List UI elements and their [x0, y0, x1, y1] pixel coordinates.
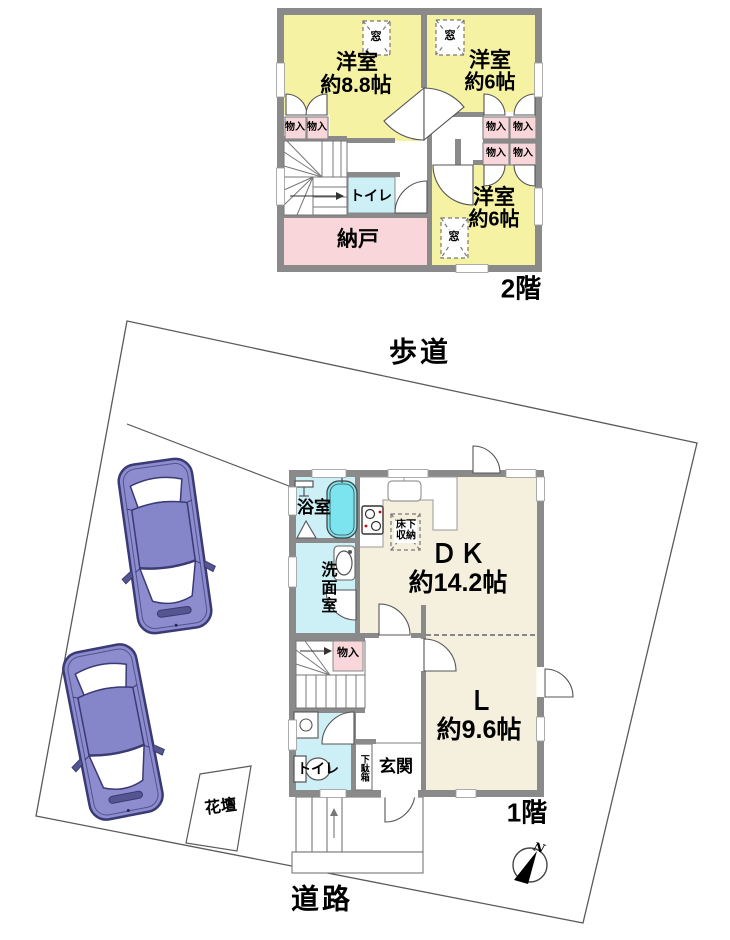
living-name: Ｌ [468, 687, 494, 714]
closet-label: 物入 [513, 123, 533, 134]
washroom-label: 洗面室 [318, 561, 335, 615]
bath-label: 浴室 [297, 499, 331, 517]
window-label: 窓 [371, 32, 382, 44]
room2-2f-name: 洋室 [469, 50, 511, 72]
floor2-plan [277, 8, 543, 273]
dk-name: ＤＫ [431, 540, 487, 567]
window-label: 窓 [445, 31, 456, 43]
closet-1f-label: 物入 [337, 648, 359, 660]
stairs-2f [284, 141, 347, 215]
floorplan-drawing [0, 0, 730, 940]
toilet-1f-label: トイレ [297, 762, 339, 777]
closet-label: 物入 [486, 123, 506, 134]
closet-label: 物入 [513, 149, 533, 160]
window-label: 窓 [449, 232, 460, 244]
floor2-title: 2階 [501, 275, 541, 302]
entrance-label: 玄関 [379, 758, 413, 776]
room2-2f-size: 約6帖 [464, 73, 515, 94]
closet-label: 物入 [307, 123, 327, 134]
storage-2f-label: 納戸 [337, 229, 379, 251]
bathtub [327, 476, 357, 538]
shoebox-label: 下駄箱 [359, 755, 368, 782]
road-label: 道路 [291, 884, 353, 913]
underfloor-label: 床下収納 [394, 521, 418, 542]
room3-2f-size: 約6帖 [468, 210, 519, 231]
kitchen-sink [388, 481, 421, 501]
room3-2f-name: 洋室 [473, 187, 515, 209]
dk-size: 約14.2帖 [409, 570, 508, 596]
closet-label: 物入 [486, 149, 506, 160]
closet-label: 物入 [285, 123, 305, 134]
floorplan-canvas: 歩道 道路 花壇 N 洋室 約8.8帖 洋室 約6帖 洋室 約6帖 トイレ 納戸… [0, 0, 730, 940]
stove [362, 506, 383, 534]
sidewalk-label: 歩道 [389, 337, 451, 366]
toilet-corner-sink [294, 712, 318, 738]
floor1-title: 1階 [507, 799, 547, 826]
room1-2f-size: 約8.8帖 [320, 75, 391, 97]
toilet-2f-label: トイレ [350, 189, 392, 204]
washroom-sink [334, 546, 355, 580]
room1-2f-name: 洋室 [336, 52, 378, 74]
living-size: 約9.6帖 [437, 717, 522, 743]
